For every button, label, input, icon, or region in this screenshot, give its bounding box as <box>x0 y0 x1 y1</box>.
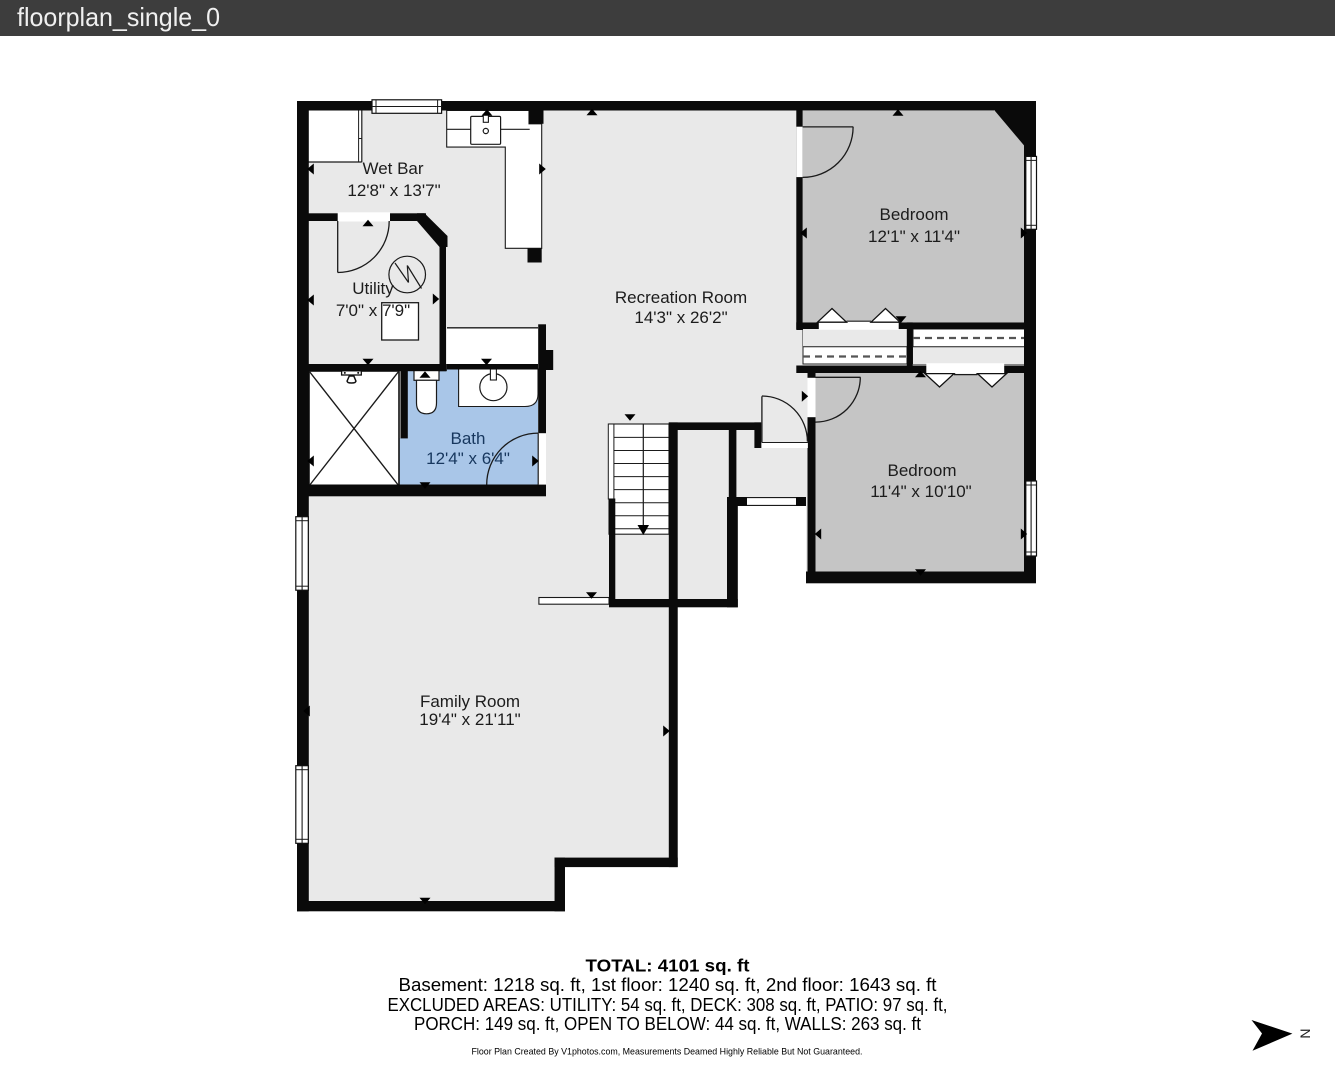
svg-text:12'8" x 13'7": 12'8" x 13'7" <box>347 181 440 200</box>
svg-text:19'4" x 21'11": 19'4" x 21'11" <box>419 710 520 729</box>
svg-text:11'4" x 10'10": 11'4" x 10'10" <box>870 482 971 501</box>
svg-text:Bedroom: Bedroom <box>888 461 957 480</box>
svg-text:Floor Plan Created By V1photos: Floor Plan Created By V1photos.com, Meas… <box>472 1046 863 1057</box>
svg-text:Bath: Bath <box>451 429 486 448</box>
svg-text:TOTAL: 4101 sq. ft: TOTAL: 4101 sq. ft <box>586 956 750 976</box>
svg-text:Family Room: Family Room <box>420 692 520 711</box>
svg-text:Recreation Room: Recreation Room <box>615 288 747 307</box>
svg-text:Basement: 1218 sq. ft, 1st flo: Basement: 1218 sq. ft, 1st floor: 1240 s… <box>399 975 937 995</box>
svg-text:7'0" x 7'9": 7'0" x 7'9" <box>336 301 410 320</box>
svg-text:PORCH: 149 sq. ft, OPEN TO BEL: PORCH: 149 sq. ft, OPEN TO BELOW: 44 sq.… <box>414 1014 921 1034</box>
svg-text:12'4" x 6'4": 12'4" x 6'4" <box>426 449 510 468</box>
svg-text:floorplan_single_0: floorplan_single_0 <box>17 2 220 32</box>
svg-text:12'1" x 11'4": 12'1" x 11'4" <box>868 227 960 246</box>
svg-text:14'3" x 26'2": 14'3" x 26'2" <box>634 308 727 327</box>
svg-text:Bedroom: Bedroom <box>880 205 949 224</box>
svg-text:Utility: Utility <box>352 279 394 298</box>
svg-text:EXCLUDED AREAS: UTILITY: 54 sq: EXCLUDED AREAS: UTILITY: 54 sq. ft, DECK… <box>388 995 948 1015</box>
svg-text:Wet Bar: Wet Bar <box>362 159 423 178</box>
svg-text:N: N <box>1298 1028 1314 1038</box>
